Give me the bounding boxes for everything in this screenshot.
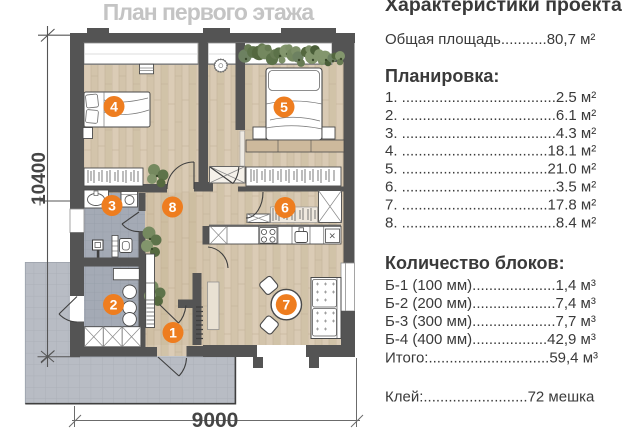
svg-text:7: 7 [282, 297, 290, 313]
svg-text:Общая площадь...........80,7 м: Общая площадь...........80,7 м² [385, 31, 595, 48]
svg-text:7. ...........................: 7. ...................................17… [385, 196, 596, 213]
svg-text:4. ...........................: 4. ...................................18… [385, 143, 596, 160]
svg-text:Б-4 (400 мм)..................: Б-4 (400 мм)..................42,9 м³ [385, 331, 596, 348]
svg-text:1: 1 [169, 325, 177, 341]
svg-text:8: 8 [169, 199, 177, 215]
svg-text:4: 4 [110, 99, 118, 115]
svg-text:2. ...........................: 2. .....................................… [385, 107, 596, 124]
svg-text:Б-3 (300 мм)..................: Б-3 (300 мм)....................7,7 м³ [385, 313, 596, 330]
svg-text:Количество блоков:: Количество блоков: [385, 253, 565, 273]
svg-text:8. ...........................: 8. .....................................… [385, 214, 596, 231]
svg-text:6. ...........................: 6. .....................................… [385, 179, 596, 196]
svg-text:6: 6 [281, 200, 289, 216]
svg-text:2: 2 [110, 297, 118, 313]
svg-text:Клей:.........................: Клей:.........................72 мешка [385, 389, 595, 406]
svg-text:3. ...........................: 3. .....................................… [385, 125, 596, 142]
svg-text:Характеристики проекта: Характеристики проекта [385, 0, 622, 16]
svg-text:9000: 9000 [192, 409, 239, 432]
svg-text:Б-2 (200 мм)..................: Б-2 (200 мм)....................7,4 м³ [385, 295, 596, 312]
svg-text:Итого:........................: Итого:.............................59,4 … [385, 349, 598, 366]
svg-text:Б-1 (100 мм)..................: Б-1 (100 мм)....................1,4 м³ [385, 277, 596, 294]
svg-text:План первого этажа: План первого этажа [103, 0, 315, 25]
svg-text:Планировка:: Планировка: [385, 66, 499, 86]
svg-text:3: 3 [108, 198, 116, 214]
svg-text:5: 5 [280, 99, 288, 115]
svg-text:10400: 10400 [29, 152, 50, 205]
svg-text:1. ...........................: 1. .....................................… [385, 89, 596, 106]
svg-text:5. ...........................: 5. ...................................21… [385, 161, 596, 178]
